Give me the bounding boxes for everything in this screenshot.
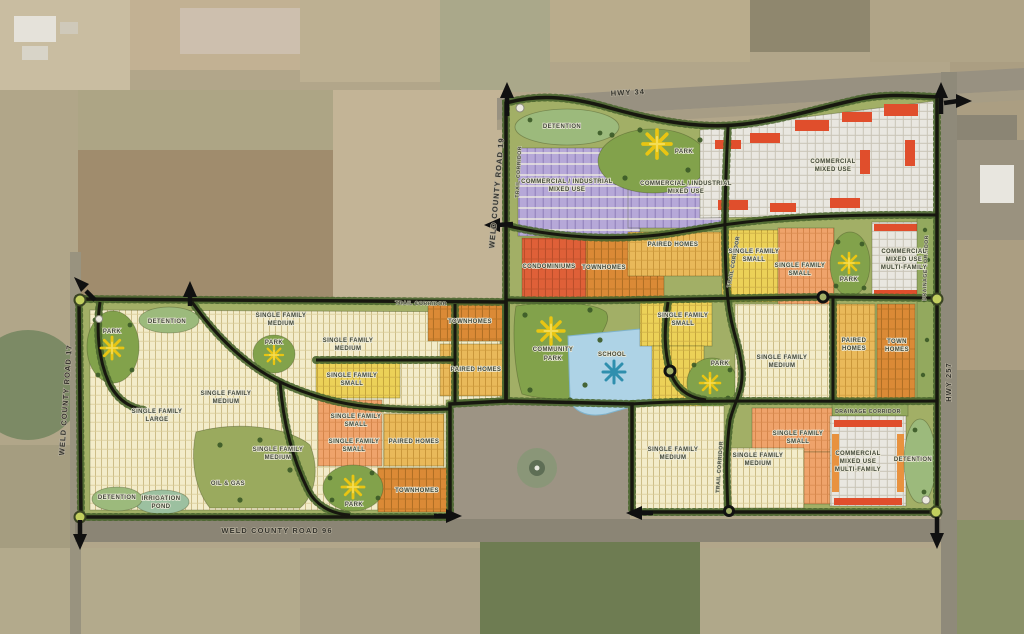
roundabout <box>725 507 734 516</box>
zone-label-paired-homes: PAIRED HOMES <box>648 242 699 248</box>
zone-label-single-family-small: SINGLE FAMILY <box>327 373 378 379</box>
svg-text:HOMES: HOMES <box>885 347 909 353</box>
svg-text:MIXED USE: MIXED USE <box>815 167 852 173</box>
zone-label-commercial-multifamily: COMMERCIAL <box>835 451 880 457</box>
district-single-family-small-orange-s2 <box>802 452 832 504</box>
roundabout <box>665 366 675 376</box>
well-site-marker <box>922 496 930 504</box>
road-label-drainage-corridor: DRAINAGE CORRIDOR <box>835 409 901 415</box>
svg-text:POND: POND <box>152 504 171 510</box>
district-irrigation-pond <box>135 490 189 514</box>
zone-label-park: PARK <box>265 340 283 346</box>
roundabout <box>818 292 828 302</box>
zone-label-commercial-industrial: COMMERCIAL / INDUSTRIAL <box>521 179 613 185</box>
svg-text:MEDIUM: MEDIUM <box>660 455 687 461</box>
zone-label-townhomes: TOWNHOMES <box>395 488 439 494</box>
zone-label-single-family-large: SINGLE FAMILY <box>132 409 183 415</box>
svg-text:MEDIUM: MEDIUM <box>335 346 362 352</box>
svg-text:SMALL: SMALL <box>789 271 812 277</box>
zone-label-single-family-small: SINGLE FAMILY <box>329 439 380 445</box>
district-single-family-small-orange-s1 <box>752 408 832 452</box>
zone-label-single-family-small: SINGLE FAMILY <box>729 249 780 255</box>
svg-text:MIXED USE: MIXED USE <box>549 187 586 193</box>
school-snowflake-icon <box>603 361 625 383</box>
zone-label-paired-homes: PAIRED <box>842 338 867 344</box>
zone-label-single-family-medium: SINGLE FAMILY <box>757 355 808 361</box>
road-label-trail-corridor: TRAIL CORRIDOR <box>395 301 447 308</box>
zone-label-townhomes: TOWN <box>887 339 907 345</box>
park-sun-icon <box>643 130 671 158</box>
zone-label-single-family-medium: SINGLE FAMILY <box>201 391 252 397</box>
svg-text:MIXED USE: MIXED USE <box>840 459 877 465</box>
zone-label-single-family-small: SINGLE FAMILY <box>331 414 382 420</box>
zone-label-park: PARK <box>711 361 729 367</box>
svg-text:PARK: PARK <box>544 356 562 362</box>
zone-label-detention: DETENTION <box>894 457 932 463</box>
park-sun-icon <box>700 373 720 393</box>
zone-label-single-family-small: SINGLE FAMILY <box>773 431 824 437</box>
zone-label-park: PARK <box>675 149 693 155</box>
svg-text:MEDIUM: MEDIUM <box>745 461 772 467</box>
gateway-marker <box>932 294 943 305</box>
svg-text:MEDIUM: MEDIUM <box>769 363 796 369</box>
zone-label-paired-homes: PAIRED HOMES <box>451 367 502 373</box>
zone-label-detention: DETENTION <box>543 124 581 130</box>
svg-text:SMALL: SMALL <box>743 257 766 263</box>
park-sun-icon <box>839 253 859 273</box>
zone-label-commercial-mixed-use: COMMERCIAL <box>810 159 855 165</box>
district-paired-homes-mid <box>833 304 875 400</box>
road-label-hwy34: HWY 34 <box>610 87 645 98</box>
gateway-marker <box>931 507 942 518</box>
zone-label-single-family-medium: SINGLE FAMILY <box>323 338 374 344</box>
svg-text:MEDIUM: MEDIUM <box>265 455 292 461</box>
svg-text:SMALL: SMALL <box>341 381 364 387</box>
svg-text:SMALL: SMALL <box>343 447 366 453</box>
svg-text:MIXED USE: MIXED USE <box>886 257 923 263</box>
zone-label-oil-gas: OIL & GAS <box>211 481 245 487</box>
park-sun-icon <box>265 346 283 364</box>
zone-label-detention: DETENTION <box>98 495 136 501</box>
zone-label-commercial-industrial: COMMERCIAL / INDUSTRIAL <box>640 181 732 187</box>
zone-label-condominiums: CONDOMINIUMS <box>522 264 575 270</box>
zone-label-single-family-medium: SINGLE FAMILY <box>253 447 304 453</box>
road-label-hwy257: HWY 257 <box>944 362 953 402</box>
zone-label-townhomes: TOWNHOMES <box>448 319 492 325</box>
wcr-96-road <box>75 519 941 542</box>
svg-text:SMALL: SMALL <box>672 321 695 327</box>
district-single-family-small-yellow-w <box>316 362 400 398</box>
zone-label-irrigation-pond: IRRIGATION <box>142 496 181 502</box>
zone-label-detention: DETENTION <box>148 319 186 325</box>
zone-label-single-family-medium: SINGLE FAMILY <box>648 447 699 453</box>
park-sun-icon <box>101 337 123 359</box>
road-label-wcr96: WELD COUNTY ROAD 96 <box>221 526 332 535</box>
park-sun-icon <box>538 318 564 344</box>
master-plan-map: HWY 34 HWY 257 WELD COUNTY ROAD 17 WELD … <box>0 0 1024 634</box>
zone-label-single-family-medium: SINGLE FAMILY <box>733 453 784 459</box>
svg-text:MULTI-FAMILY: MULTI-FAMILY <box>835 467 881 473</box>
well-site-marker <box>516 104 524 112</box>
well-site-marker <box>96 316 103 323</box>
svg-text:MEDIUM: MEDIUM <box>268 321 295 327</box>
district-condominiums <box>522 238 586 302</box>
zone-label-single-family-small: SINGLE FAMILY <box>775 263 826 269</box>
svg-text:MIXED USE: MIXED USE <box>668 189 705 195</box>
zone-label-commercial-multifamily: COMMERCIAL <box>881 249 926 255</box>
zone-label-school: SCHOOL <box>598 352 626 358</box>
zone-label-park: PARK <box>103 329 121 335</box>
svg-text:SMALL: SMALL <box>345 422 368 428</box>
zone-label-park: PARK <box>345 502 363 508</box>
svg-text:MEDIUM: MEDIUM <box>213 399 240 405</box>
svg-text:HOMES: HOMES <box>842 346 866 352</box>
svg-text:SMALL: SMALL <box>787 439 810 445</box>
svg-text:LARGE: LARGE <box>146 417 169 423</box>
zone-label-community-park: COMMUNITY <box>533 347 574 353</box>
zone-label-single-family-small: SINGLE FAMILY <box>658 313 709 319</box>
zone-label-townhomes: TOWNHOMES <box>582 265 626 271</box>
hwy-257-road <box>941 72 957 634</box>
zone-label-paired-homes: PAIRED HOMES <box>389 439 440 445</box>
zone-label-single-family-medium: SINGLE FAMILY <box>256 313 307 319</box>
park-sun-icon <box>342 476 364 498</box>
svg-text:MULTI-FAMILY: MULTI-FAMILY <box>881 265 927 271</box>
district-single-family-medium-mid <box>735 304 831 400</box>
zone-label-park: PARK <box>840 277 858 283</box>
gateway-marker <box>75 295 86 306</box>
